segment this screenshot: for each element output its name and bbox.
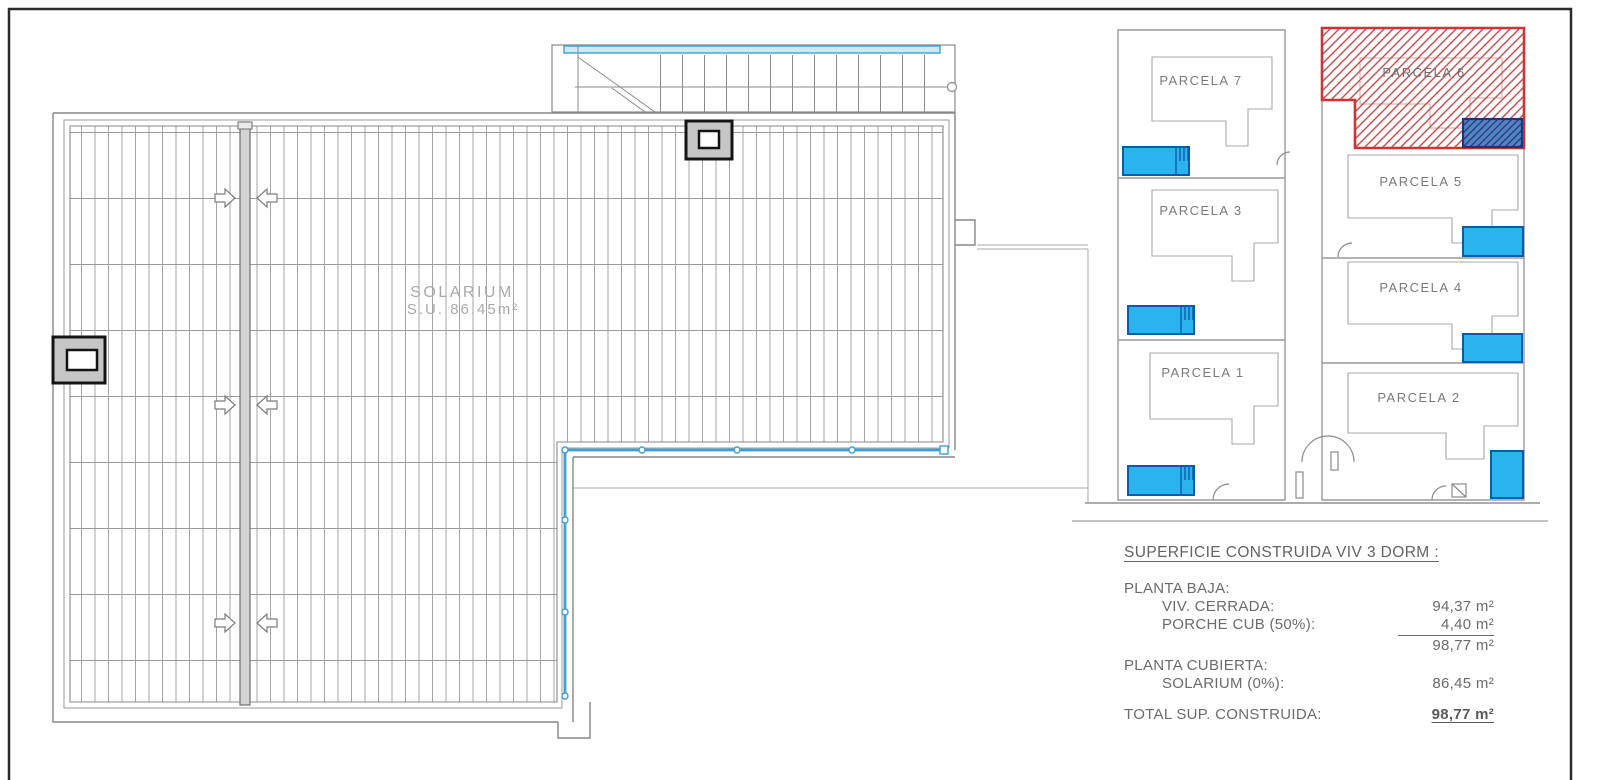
stair-glass-rail	[564, 46, 940, 53]
site-plan: PARCELA 7 PARCELA 3 PARCELA 1 PARCELA 6 …	[1072, 28, 1548, 521]
parcela-5-label: PARCELA 5	[1379, 174, 1462, 189]
total-value: 98,77 m²	[1398, 706, 1494, 723]
summary-row-subtotal: 98,77 m²	[1124, 635, 1494, 654]
pool-parcela-1	[1128, 466, 1194, 495]
solarium-label: SOLARIUM	[410, 284, 514, 301]
solarium-deck-grid	[70, 126, 943, 702]
door-arc	[1213, 484, 1229, 500]
summary-row-planta-cubierta: PLANTA CUBIERTA:	[1124, 657, 1494, 674]
parcela-6-highlight	[1322, 28, 1524, 148]
chimney-left	[53, 337, 105, 383]
summary-row-solarium: SOLARIUM (0%): 86,45 m²	[1124, 675, 1494, 692]
ground-lines	[1072, 503, 1548, 521]
summary-row-viv-cerrada: VIV. CERRADA: 94,37 m²	[1124, 598, 1494, 615]
parcela-6-label: PARCELA 6	[1382, 65, 1465, 80]
pool-parcela-3	[1128, 306, 1194, 334]
viv-cerrada-label: VIV. CERRADA:	[1162, 598, 1275, 615]
summary-title: SUPERFICIE CONSTRUIDA VIV 3 DORM :	[1124, 544, 1494, 561]
door-arc	[1432, 486, 1446, 500]
central-gutter	[238, 122, 252, 705]
parcela-2-label: PARCELA 2	[1377, 390, 1460, 405]
skylight-top	[686, 121, 732, 159]
planta-cubierta-label: PLANTA CUBIERTA:	[1124, 657, 1268, 674]
pool-parcela-7	[1123, 147, 1189, 175]
surface-summary-table: SUPERFICIE CONSTRUIDA VIV 3 DORM : PLANT…	[1124, 544, 1494, 724]
total-label: TOTAL SUP. CONSTRUIDA:	[1124, 706, 1322, 723]
summary-row-total: TOTAL SUP. CONSTRUIDA: 98,77 m²	[1124, 706, 1494, 723]
parcela-3-label: PARCELA 3	[1159, 203, 1242, 218]
stair-treads	[655, 55, 943, 112]
parcela-4-label: PARCELA 4	[1379, 280, 1462, 295]
door-arc	[1277, 152, 1290, 165]
parcela-1-label: PARCELA 1	[1161, 365, 1244, 380]
parcela-7-label: PARCELA 7	[1159, 73, 1242, 88]
subtotal-value: 98,77 m²	[1398, 635, 1494, 654]
pool-parcela-5	[1463, 227, 1523, 256]
house-parcela-7	[1152, 57, 1272, 146]
solarium-row-label: SOLARIUM (0%):	[1162, 675, 1285, 692]
summary-row-porche: PORCHE CUB (50%): 4,40 m²	[1124, 616, 1494, 633]
door-arc	[1338, 243, 1352, 257]
architectural-drawing-page: SOLARIUM S.U. 86.45m²	[0, 0, 1600, 780]
main-roof-plan: SOLARIUM S.U. 86.45m²	[53, 45, 1088, 738]
viv-cerrada-value: 94,37 m²	[1398, 598, 1494, 615]
summary-row-planta-baja: PLANTA BAJA:	[1124, 580, 1494, 597]
solarium-row-value: 86,45 m²	[1398, 675, 1494, 692]
planta-baja-label: PLANTA BAJA:	[1124, 580, 1230, 597]
house-parcela-2	[1348, 373, 1518, 459]
pool-parcela-2	[1491, 451, 1523, 498]
solarium-area-label: S.U. 86.45m²	[407, 301, 519, 318]
glass-railing	[562, 446, 948, 699]
staircase	[552, 45, 957, 112]
pool-parcela-6	[1463, 119, 1522, 147]
pool-parcela-4	[1463, 334, 1522, 362]
gate-leaf	[1302, 436, 1328, 462]
porche-value: 4,40 m²	[1398, 616, 1494, 633]
porche-label: PORCHE CUB (50%):	[1162, 616, 1315, 633]
